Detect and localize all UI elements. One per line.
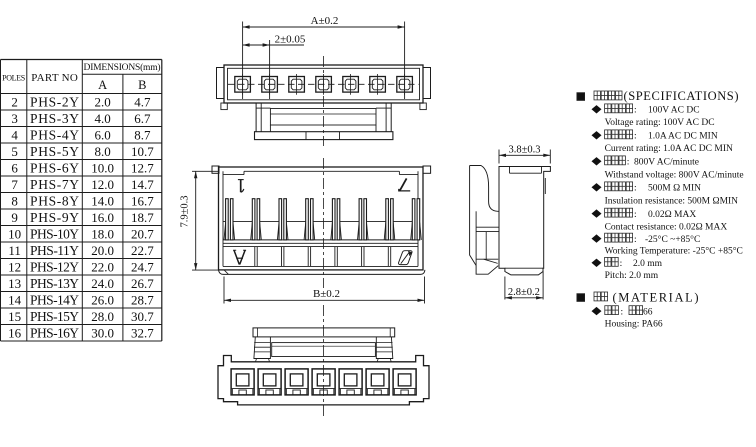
svg-text:-25°C ~+85°C: -25°C ~+85°C bbox=[645, 234, 700, 245]
svg-text:2: 2 bbox=[11, 94, 18, 109]
svg-text:Withstand voltage: 800V AC/min: Withstand voltage: 800V AC/minute bbox=[605, 171, 744, 181]
svg-text:13: 13 bbox=[8, 276, 21, 291]
svg-text:5: 5 bbox=[11, 144, 18, 159]
svg-text:Housing: PA66: Housing: PA66 bbox=[605, 319, 663, 329]
svg-text:12.0: 12.0 bbox=[91, 177, 114, 192]
svg-text::: : bbox=[634, 106, 637, 116]
svg-text:8: 8 bbox=[11, 193, 18, 208]
svg-text:9: 9 bbox=[11, 210, 18, 225]
svg-text:11: 11 bbox=[8, 243, 21, 258]
svg-text:PHS-11Y: PHS-11Y bbox=[30, 243, 79, 258]
svg-text::: : bbox=[634, 210, 637, 220]
svg-text:24.0: 24.0 bbox=[91, 276, 114, 291]
svg-text::: : bbox=[634, 184, 637, 194]
svg-text:A: A bbox=[98, 78, 107, 92]
svg-text:14.0: 14.0 bbox=[91, 193, 114, 208]
svg-text:PHS-9Y: PHS-9Y bbox=[30, 210, 79, 225]
svg-text:16: 16 bbox=[8, 325, 22, 340]
svg-text:PHS-10Y: PHS-10Y bbox=[30, 226, 79, 241]
svg-text:(SPECIFICATIONS): (SPECIFICATIONS) bbox=[624, 89, 739, 103]
svg-text:16.7: 16.7 bbox=[131, 193, 154, 208]
svg-text:3: 3 bbox=[11, 111, 18, 126]
svg-text:PHS-5Y: PHS-5Y bbox=[30, 144, 79, 159]
svg-text:8.0: 8.0 bbox=[94, 144, 110, 159]
svg-text:Insulation resistance: 500M Ω: Insulation resistance: 500M ΩMIN bbox=[605, 197, 739, 207]
svg-text:14.7: 14.7 bbox=[131, 177, 154, 192]
svg-text:4.7: 4.7 bbox=[134, 94, 151, 109]
svg-text:30.7: 30.7 bbox=[131, 309, 154, 324]
svg-text:B: B bbox=[138, 78, 146, 92]
svg-text:6: 6 bbox=[11, 160, 18, 175]
svg-text:12.7: 12.7 bbox=[131, 160, 154, 175]
svg-text:28.0: 28.0 bbox=[91, 309, 114, 324]
svg-text:22.0: 22.0 bbox=[91, 259, 114, 274]
svg-text:7: 7 bbox=[11, 177, 18, 192]
svg-text:Pitch: 2.0 mm: Pitch: 2.0 mm bbox=[605, 271, 659, 281]
svg-text:8.7: 8.7 bbox=[134, 127, 151, 142]
svg-text:PHS-3Y: PHS-3Y bbox=[30, 111, 79, 126]
svg-text:PHS-16Y: PHS-16Y bbox=[30, 325, 79, 340]
svg-text:7.9±0.3: 7.9±0.3 bbox=[179, 195, 190, 227]
svg-text:500M Ω MIN: 500M Ω MIN bbox=[648, 184, 701, 194]
svg-text:22.7: 22.7 bbox=[131, 243, 154, 258]
svg-text:PHS-8Y: PHS-8Y bbox=[30, 193, 79, 208]
svg-text:6.0: 6.0 bbox=[94, 127, 110, 142]
svg-text:16.0: 16.0 bbox=[91, 210, 114, 225]
svg-text:2.0: 2.0 bbox=[94, 94, 110, 109]
svg-text:1.0A AC DC MIN: 1.0A AC DC MIN bbox=[648, 132, 718, 142]
svg-text:POLES: POLES bbox=[2, 74, 25, 83]
svg-text:100V AC DC: 100V AC DC bbox=[648, 106, 700, 116]
svg-text:PHS-4Y: PHS-4Y bbox=[30, 127, 79, 142]
svg-text:0.02Ω MAX: 0.02Ω MAX bbox=[648, 210, 696, 220]
svg-text:30.0: 30.0 bbox=[91, 325, 114, 340]
svg-text::: : bbox=[627, 158, 630, 168]
svg-text:10.0: 10.0 bbox=[91, 160, 114, 175]
svg-text:10.7: 10.7 bbox=[131, 144, 154, 159]
svg-text:DIMENSIONS(mm): DIMENSIONS(mm) bbox=[84, 62, 161, 73]
svg-text:2.0 mm: 2.0 mm bbox=[633, 259, 663, 269]
svg-text:18.0: 18.0 bbox=[91, 226, 114, 241]
svg-text::: : bbox=[620, 259, 623, 269]
svg-text:6.7: 6.7 bbox=[134, 111, 151, 126]
svg-text::: : bbox=[621, 307, 624, 317]
svg-text:15: 15 bbox=[8, 309, 21, 324]
svg-text::: : bbox=[634, 132, 637, 142]
svg-text:32.7: 32.7 bbox=[131, 325, 154, 340]
svg-text:3.8±0.3: 3.8±0.3 bbox=[508, 144, 540, 155]
svg-text:800V AC/minute: 800V AC/minute bbox=[634, 158, 699, 168]
svg-text:66: 66 bbox=[643, 307, 653, 317]
svg-text:(MATERIAL): (MATERIAL) bbox=[613, 290, 699, 304]
svg-text:2±0.05: 2±0.05 bbox=[275, 34, 306, 46]
svg-text:14: 14 bbox=[8, 292, 22, 307]
svg-text:PHS-7Y: PHS-7Y bbox=[30, 177, 79, 192]
svg-text:20.7: 20.7 bbox=[131, 226, 154, 241]
svg-text:PHS-6Y: PHS-6Y bbox=[30, 160, 79, 175]
svg-text:PHS-12Y: PHS-12Y bbox=[30, 259, 79, 274]
svg-text:Current rating: 1.0A AC DC M: Current rating: 1.0A AC DC MIN bbox=[605, 144, 733, 154]
svg-text:10: 10 bbox=[8, 226, 21, 241]
svg-text:PHS-13Y: PHS-13Y bbox=[30, 276, 79, 291]
svg-text:Working Temperature: -25°C +8: Working Temperature: -25°C +85°C bbox=[605, 245, 743, 256]
svg-text:26.0: 26.0 bbox=[91, 292, 114, 307]
svg-text:4.0: 4.0 bbox=[94, 111, 110, 126]
svg-text::: : bbox=[634, 235, 637, 245]
svg-text:PHS-2Y: PHS-2Y bbox=[30, 94, 79, 109]
svg-text:28.7: 28.7 bbox=[131, 292, 154, 307]
svg-text:Contact resistance: 0.02Ω MA: Contact resistance: 0.02Ω MAX bbox=[605, 223, 728, 233]
svg-text:26.7: 26.7 bbox=[131, 276, 154, 291]
svg-text:PART NO: PART NO bbox=[31, 72, 78, 84]
svg-text:12: 12 bbox=[8, 259, 21, 274]
svg-text:2.8±0.2: 2.8±0.2 bbox=[508, 287, 540, 298]
svg-text:B±0.2: B±0.2 bbox=[313, 288, 340, 300]
svg-text:20.0: 20.0 bbox=[91, 243, 114, 258]
svg-text:A±0.2: A±0.2 bbox=[311, 15, 339, 27]
svg-text:24.7: 24.7 bbox=[131, 259, 154, 274]
svg-text:PHS-15Y: PHS-15Y bbox=[30, 309, 79, 324]
svg-text:PHS-14Y: PHS-14Y bbox=[30, 292, 79, 307]
svg-text:18.7: 18.7 bbox=[131, 210, 154, 225]
svg-text:Voltage rating: 100V AC DC: Voltage rating: 100V AC DC bbox=[605, 118, 715, 128]
svg-text:4: 4 bbox=[11, 127, 18, 142]
